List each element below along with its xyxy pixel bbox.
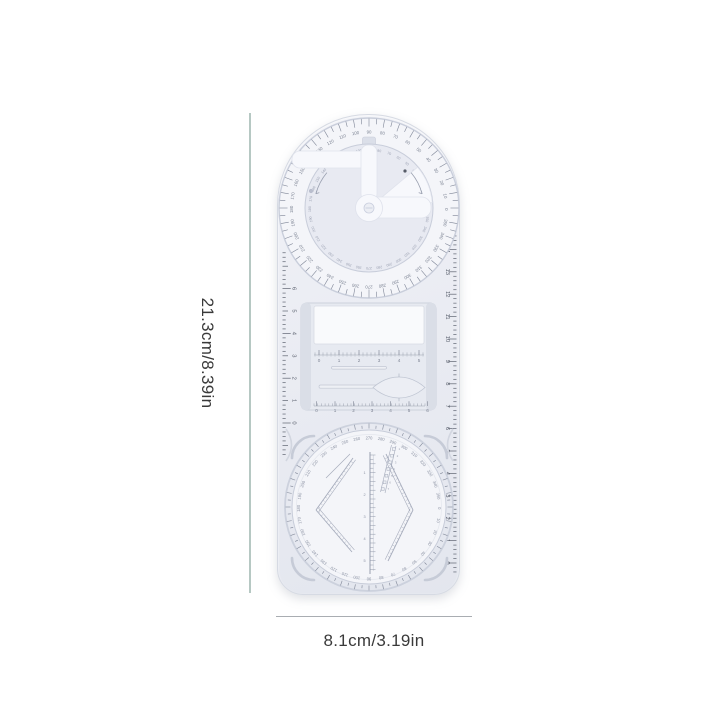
svg-text:3: 3 — [378, 358, 381, 363]
svg-text:90: 90 — [366, 576, 371, 581]
svg-text:10: 10 — [444, 336, 450, 342]
svg-text:6: 6 — [291, 287, 297, 290]
svg-text:3: 3 — [363, 515, 365, 519]
svg-text:80: 80 — [377, 149, 382, 154]
svg-text:180: 180 — [296, 504, 301, 512]
svg-text:0: 0 — [315, 408, 318, 413]
svg-text:2: 2 — [358, 358, 361, 363]
right-edge-ruler: 0123456789101112131415 — [444, 223, 457, 572]
svg-text:4: 4 — [363, 537, 365, 541]
svg-text:270: 270 — [365, 284, 373, 289]
svg-text:5: 5 — [363, 559, 365, 563]
svg-text:270: 270 — [366, 435, 374, 440]
svg-text:0: 0 — [291, 421, 297, 424]
geometric-ruler-product: 0123456012345678910111213141501234501234… — [277, 114, 460, 595]
svg-text:3: 3 — [371, 408, 374, 413]
svg-text:1: 1 — [363, 471, 365, 475]
width-dimension-label: 8.1cm/3.19in — [284, 630, 464, 652]
svg-text:1: 1 — [291, 399, 297, 402]
svg-text:6: 6 — [426, 408, 429, 413]
svg-text:1: 1 — [338, 358, 341, 363]
svg-text:7: 7 — [444, 405, 450, 408]
svg-text:180: 180 — [308, 206, 312, 212]
svg-text:5: 5 — [418, 358, 421, 363]
geometric-ruler-graphic: 0123456012345678910111213141501234501234… — [278, 115, 461, 596]
svg-text:90: 90 — [367, 129, 372, 134]
height-dimension-label: 21.3cm/8.39in — [196, 273, 218, 433]
svg-text:270: 270 — [366, 266, 372, 270]
template-window — [314, 306, 424, 344]
svg-text:0: 0 — [318, 358, 321, 363]
product-screenshot: 21.3cm/8.39in 8.1cm/3.19in 0123456012345… — [0, 0, 720, 720]
svg-text:180: 180 — [289, 205, 294, 213]
svg-text:12: 12 — [444, 291, 450, 297]
svg-text:4: 4 — [291, 332, 297, 336]
width-dimension-line — [276, 616, 472, 617]
left-edge-ruler: 0123456 — [283, 253, 297, 455]
svg-text:8: 8 — [444, 382, 450, 385]
svg-text:2: 2 — [291, 377, 297, 380]
svg-text:2: 2 — [363, 493, 365, 497]
bottom-disc-dial: 0102030405060708090100110120130140150160… — [285, 423, 453, 591]
svg-text:1: 1 — [334, 408, 337, 413]
svg-text:13: 13 — [444, 269, 450, 275]
svg-text:2: 2 — [352, 408, 355, 413]
svg-text:6: 6 — [444, 427, 450, 430]
svg-text:5: 5 — [408, 408, 411, 413]
svg-text:3: 3 — [291, 354, 297, 357]
svg-text:9: 9 — [444, 360, 450, 363]
svg-text:4: 4 — [398, 358, 401, 363]
height-dimension-line — [249, 113, 251, 593]
svg-text:4: 4 — [389, 408, 392, 413]
svg-text:11: 11 — [444, 314, 450, 320]
svg-text:5: 5 — [291, 309, 297, 312]
